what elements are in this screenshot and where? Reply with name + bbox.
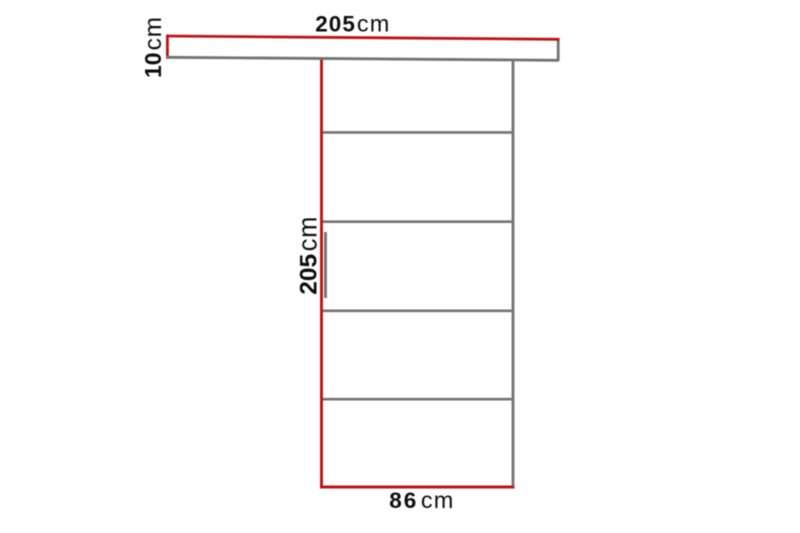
svg-text:205cm: 205cm (294, 216, 322, 295)
svg-text:205cm: 205cm (315, 11, 390, 37)
svg-text:10cm: 10cm (140, 16, 167, 78)
svg-text:86cm: 86cm (389, 487, 454, 513)
